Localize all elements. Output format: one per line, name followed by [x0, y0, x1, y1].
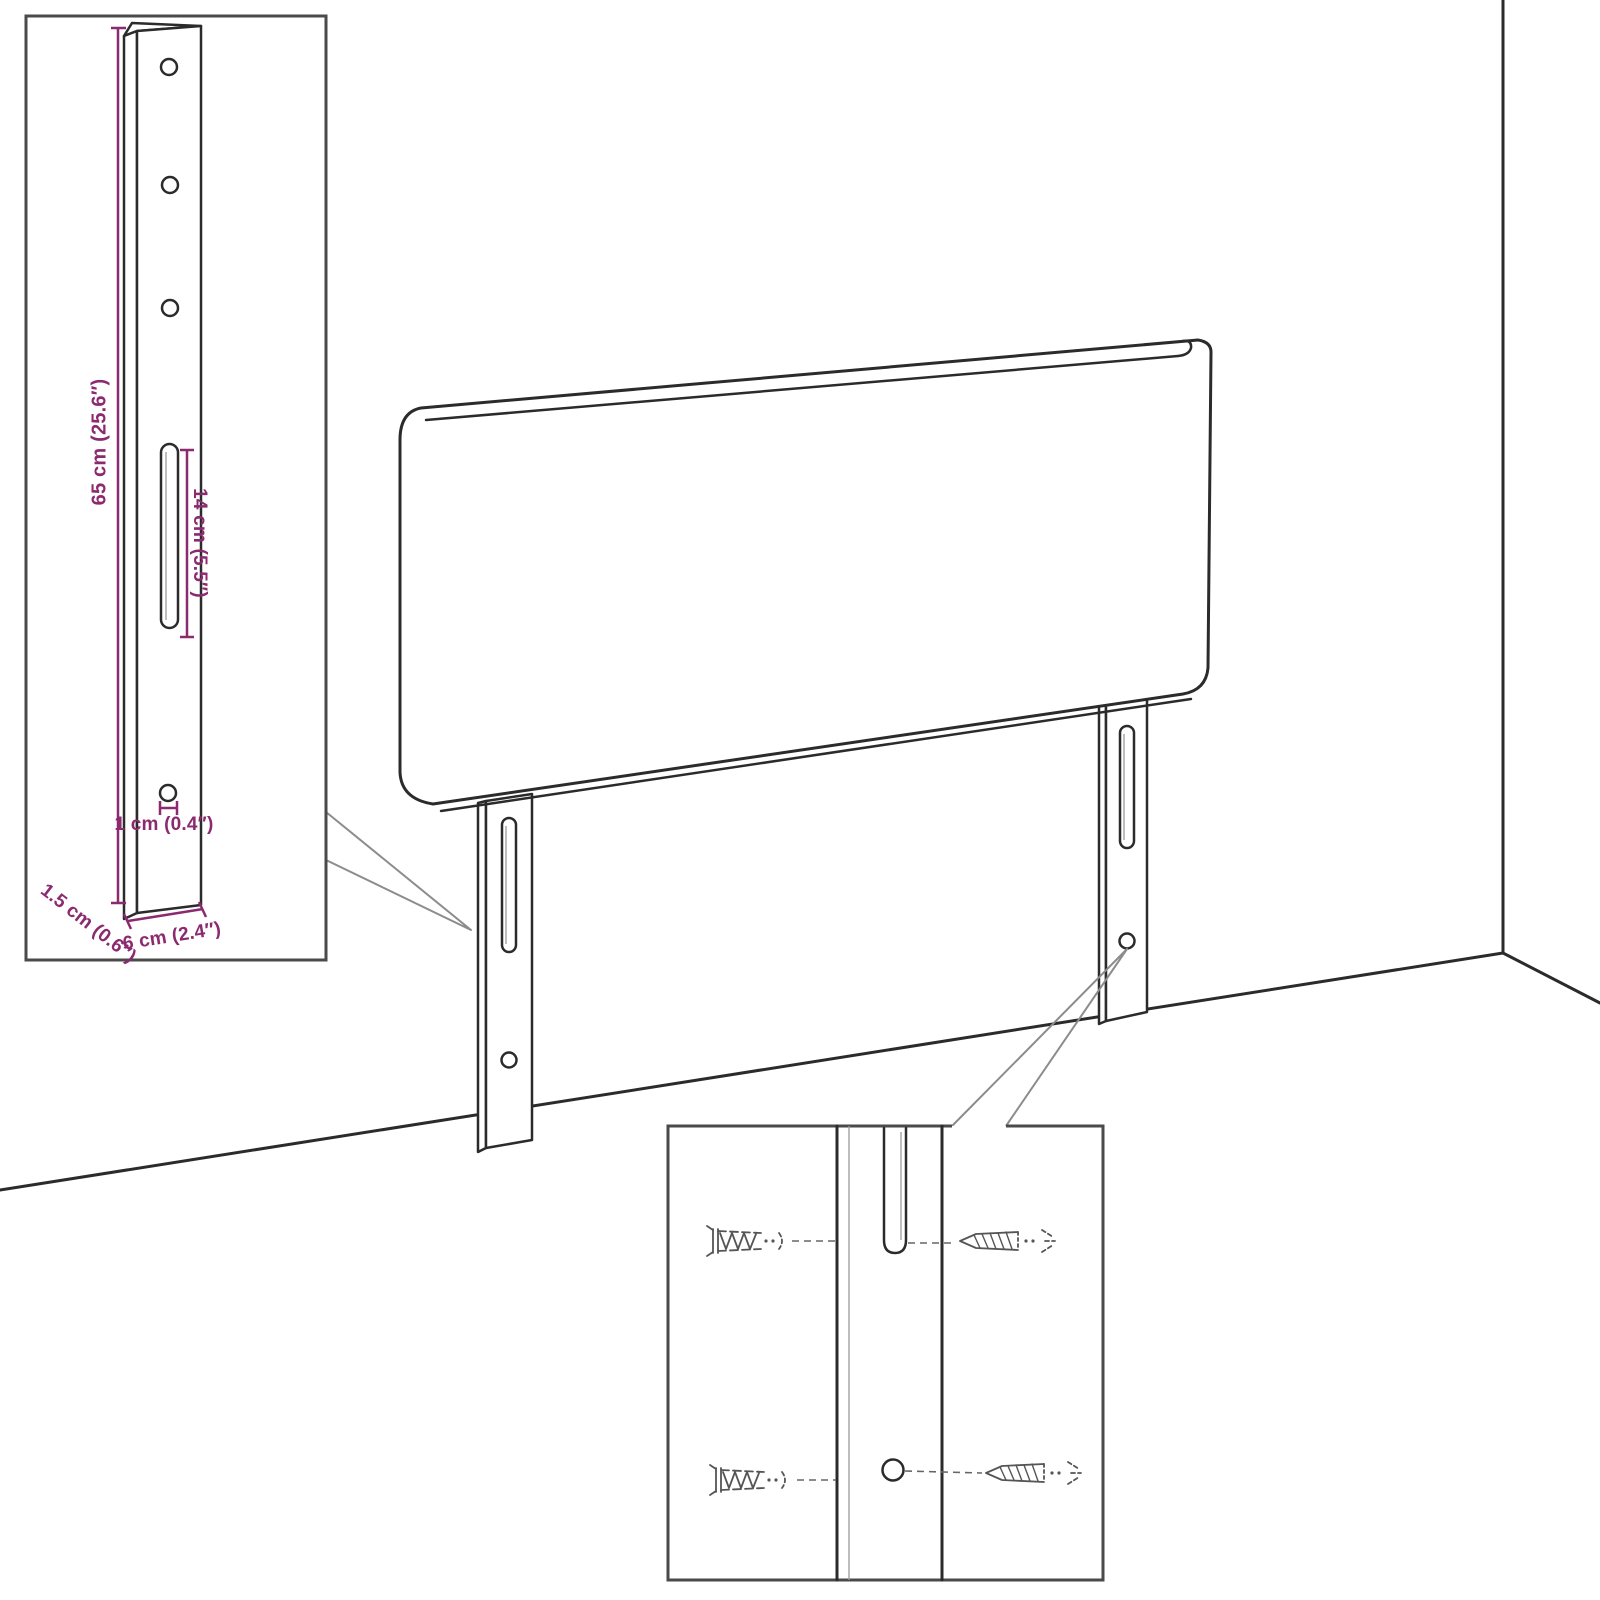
bracket-callout-lines: [326, 812, 471, 930]
bracket-side-face: [124, 31, 137, 919]
product-diagram: 65 cm (25.6″) 14 cm (5.5″) 1 cm (0.4″) 1…: [0, 0, 1600, 1600]
mounting-callout-lines: [952, 949, 1127, 1126]
diagram-canvas: [0, 0, 1600, 1600]
mounting-detail-inset: [668, 1126, 1103, 1580]
headboard: [400, 340, 1211, 811]
left-leg: [478, 794, 532, 1152]
bracket-front-face: [137, 26, 201, 913]
dim-total-height: 65 cm (25.6″): [89, 379, 112, 506]
right-leg: [1099, 698, 1147, 1024]
headboard-outline: [400, 340, 1211, 804]
dim-hole-diameter: 1 cm (0.4″): [115, 814, 214, 836]
dim-slot-length: 14 cm (5.5″): [188, 488, 210, 598]
